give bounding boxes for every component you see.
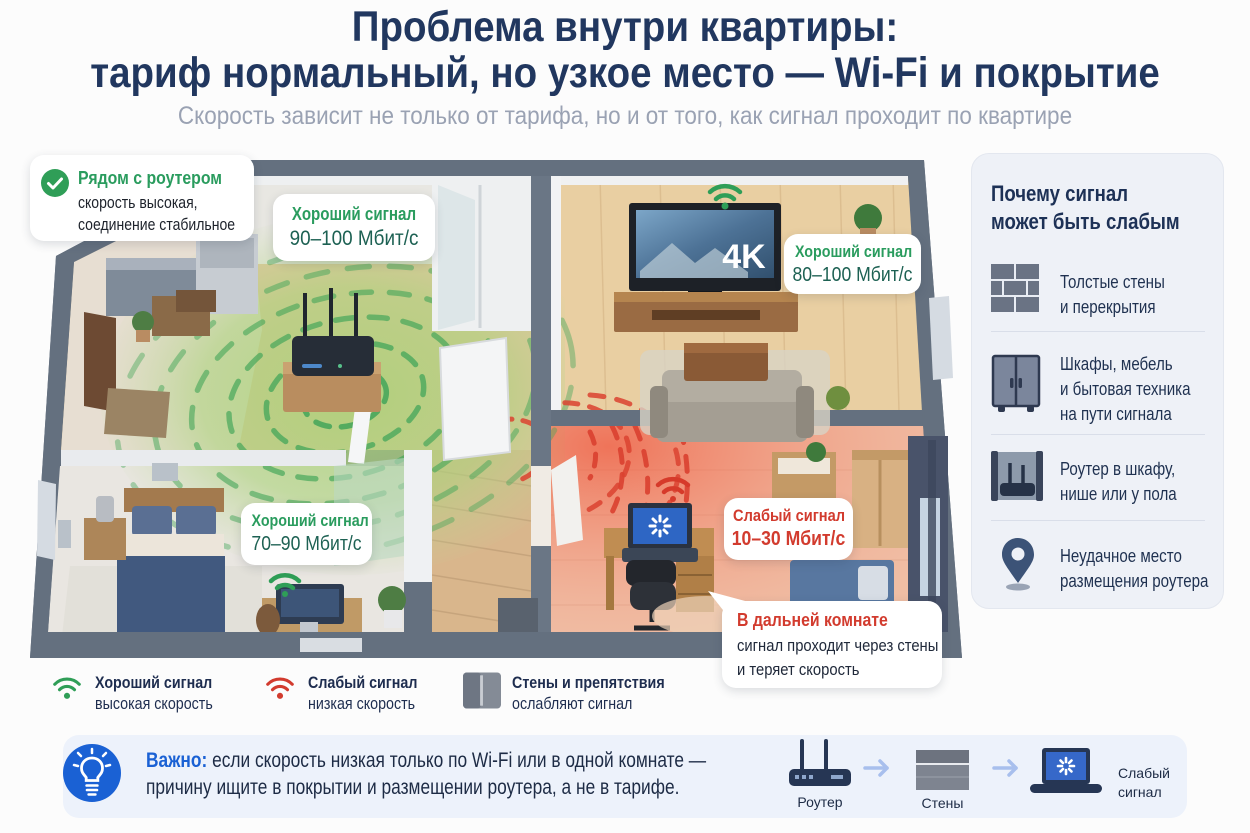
svg-text:4K: 4K	[722, 238, 766, 276]
